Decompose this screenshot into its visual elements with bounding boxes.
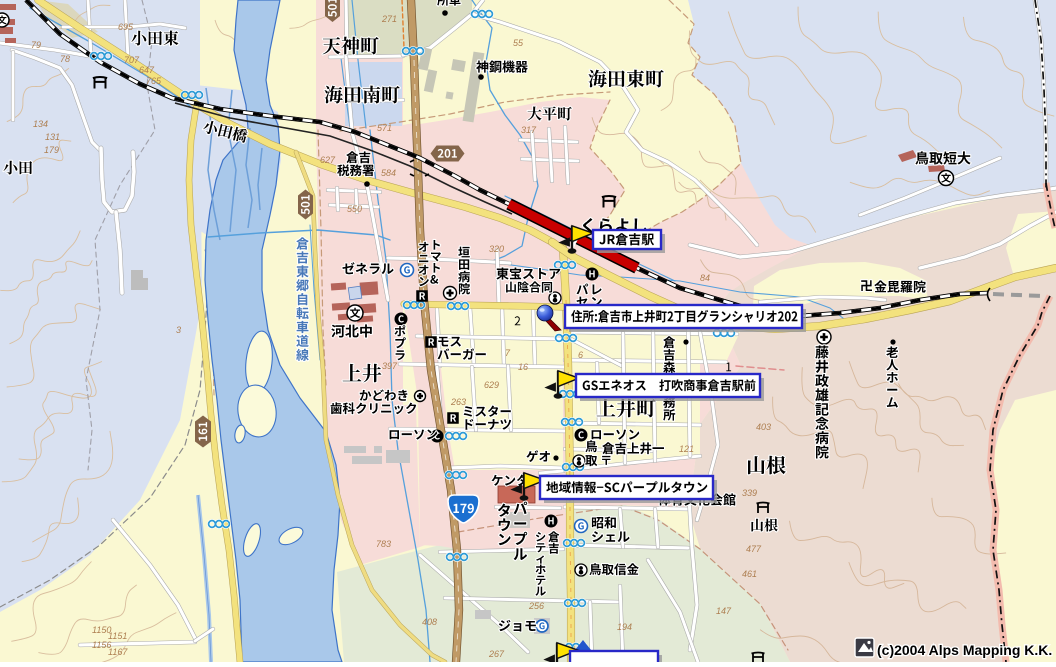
svg-text:3: 3 bbox=[176, 325, 181, 335]
svg-text:397: 397 bbox=[382, 361, 398, 371]
svg-text:695: 695 bbox=[118, 22, 134, 32]
svg-text:194: 194 bbox=[617, 622, 632, 632]
svg-text:629: 629 bbox=[484, 380, 499, 390]
svg-text:461: 461 bbox=[742, 569, 757, 579]
svg-text:403: 403 bbox=[756, 422, 771, 432]
svg-text:1167: 1167 bbox=[108, 647, 128, 657]
svg-text:627: 627 bbox=[320, 155, 336, 165]
svg-text:550: 550 bbox=[347, 204, 362, 214]
svg-text:267: 267 bbox=[488, 649, 505, 659]
svg-text:134: 134 bbox=[33, 119, 48, 129]
svg-text:78: 78 bbox=[60, 54, 70, 64]
svg-text:6: 6 bbox=[578, 350, 583, 360]
svg-text:320: 320 bbox=[489, 244, 504, 254]
svg-text:339: 339 bbox=[742, 488, 757, 498]
svg-text:55: 55 bbox=[513, 38, 524, 48]
svg-text:131: 131 bbox=[45, 132, 60, 142]
svg-text:(c)2004 Alps Mapping K.K.: (c)2004 Alps Mapping K.K. bbox=[877, 642, 1052, 658]
svg-text:84: 84 bbox=[700, 273, 710, 283]
svg-text:783: 783 bbox=[376, 539, 391, 549]
svg-text:147: 147 bbox=[716, 606, 732, 616]
svg-text:584: 584 bbox=[381, 168, 396, 178]
svg-text:408: 408 bbox=[422, 617, 437, 627]
svg-text:647: 647 bbox=[139, 65, 155, 75]
svg-text:477: 477 bbox=[746, 544, 762, 554]
svg-text:256: 256 bbox=[528, 601, 544, 611]
svg-text:16: 16 bbox=[518, 362, 528, 372]
svg-text:765: 765 bbox=[146, 76, 162, 86]
svg-text:571: 571 bbox=[377, 123, 392, 133]
svg-text:121: 121 bbox=[679, 444, 694, 454]
svg-text:707: 707 bbox=[124, 55, 140, 65]
svg-text:317: 317 bbox=[521, 125, 537, 135]
svg-text:271: 271 bbox=[381, 14, 397, 24]
svg-text:79: 79 bbox=[31, 40, 41, 50]
svg-text:263: 263 bbox=[450, 397, 466, 407]
svg-text:179: 179 bbox=[44, 145, 59, 155]
